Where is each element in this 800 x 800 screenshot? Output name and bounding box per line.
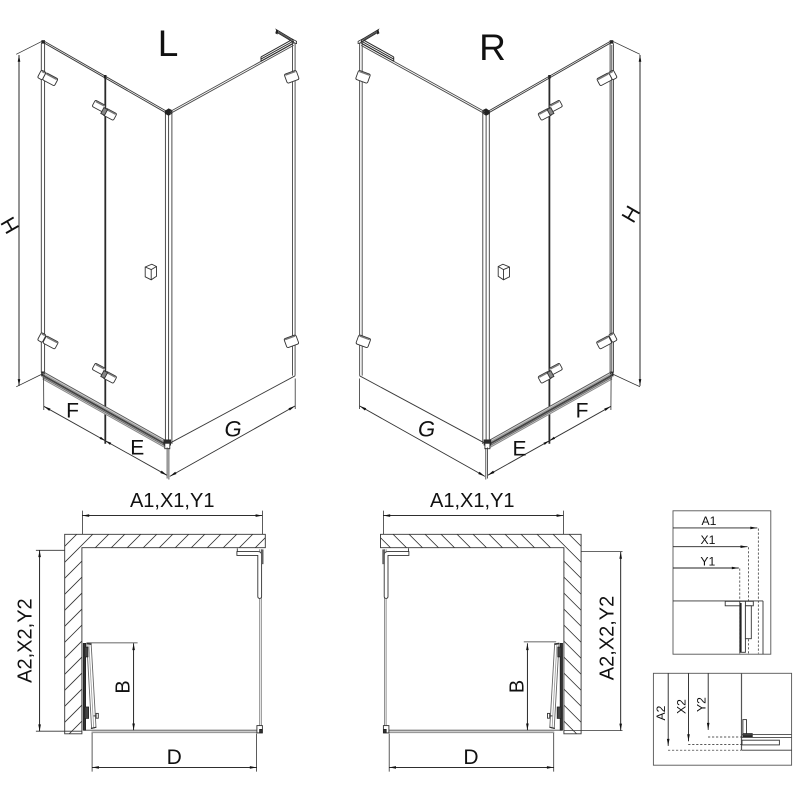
svg-text:A1,X1,Y1: A1,X1,Y1	[430, 490, 515, 512]
svg-text:A1: A1	[702, 514, 717, 528]
svg-text:F: F	[576, 400, 589, 423]
svg-text:A1,X1,Y1: A1,X1,Y1	[130, 490, 215, 512]
svg-text:E: E	[130, 437, 144, 460]
svg-text:E: E	[512, 438, 526, 461]
svg-text:G: G	[418, 416, 435, 441]
svg-text:A2,X2,Y2: A2,X2,Y2	[15, 598, 37, 683]
svg-text:D: D	[463, 746, 478, 769]
svg-text:R: R	[479, 27, 506, 68]
svg-text:X2: X2	[674, 699, 688, 714]
svg-text:B: B	[506, 680, 528, 693]
svg-text:F: F	[66, 400, 79, 423]
svg-text:G: G	[224, 416, 241, 441]
svg-text:B: B	[112, 680, 134, 693]
svg-text:Y1: Y1	[700, 555, 715, 569]
svg-text:A2: A2	[654, 705, 668, 720]
svg-text:Y2: Y2	[694, 697, 708, 712]
svg-text:X1: X1	[701, 533, 716, 547]
svg-text:A2,X2,Y2: A2,X2,Y2	[596, 596, 618, 681]
svg-text:L: L	[158, 23, 179, 64]
svg-text:D: D	[167, 746, 182, 769]
